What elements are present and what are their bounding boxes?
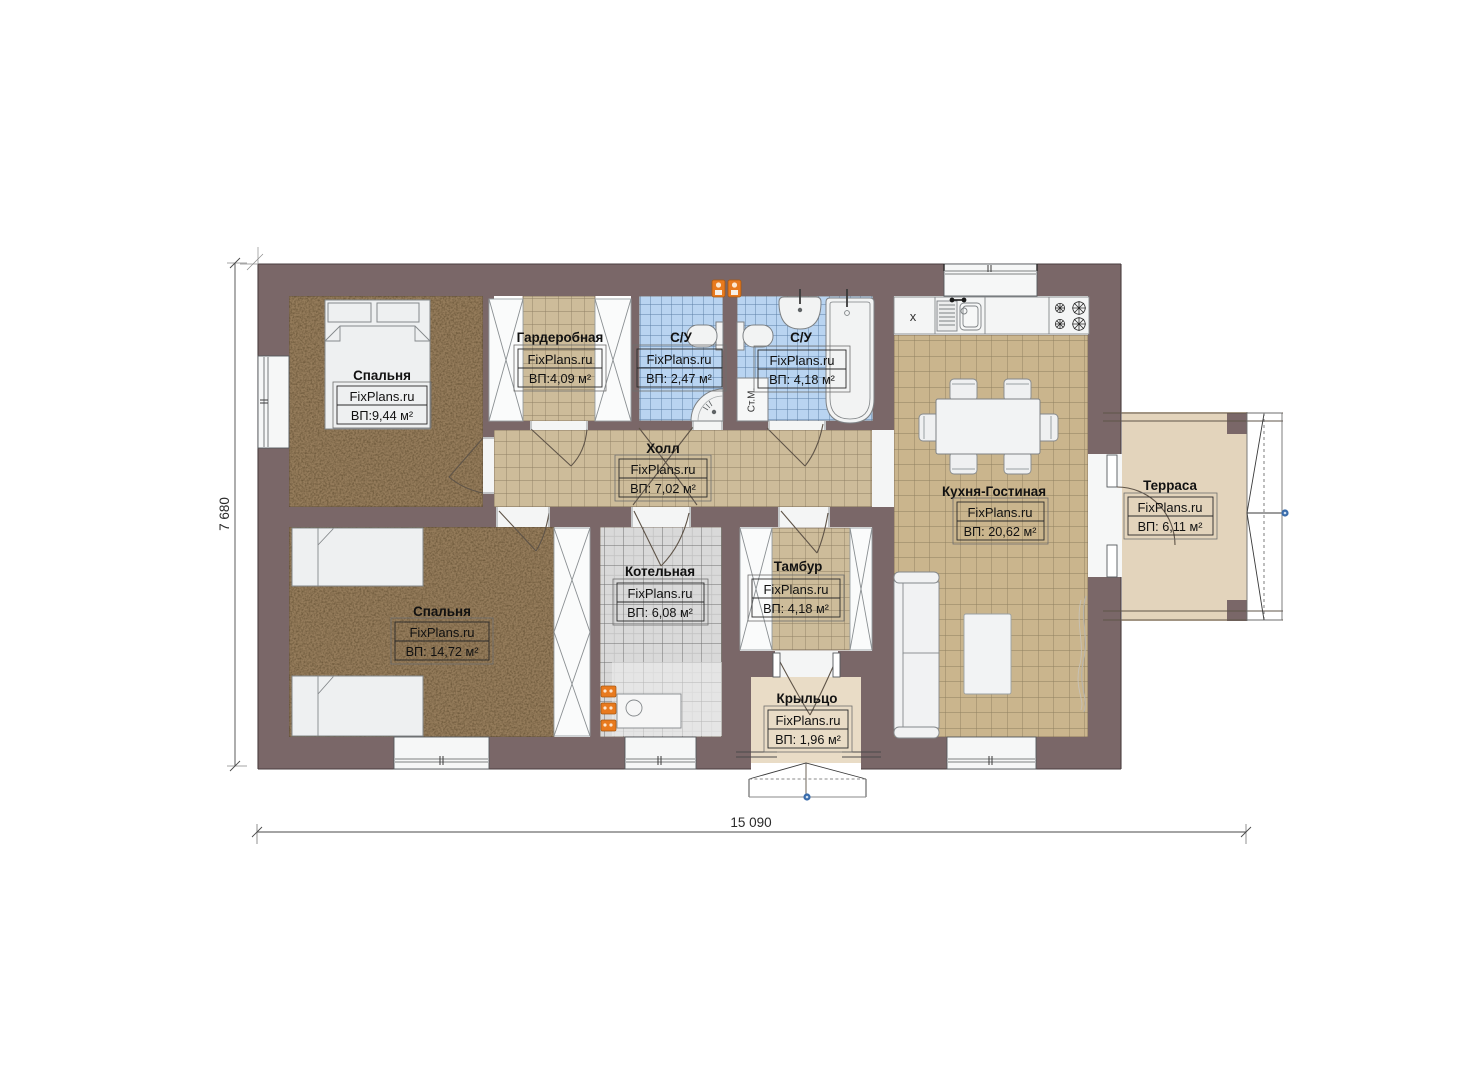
svg-text:ВП: 2,47 м²: ВП: 2,47 м² (646, 372, 712, 386)
svg-text:FixPlans.ru: FixPlans.ru (630, 462, 695, 477)
svg-text:FixPlans.ru: FixPlans.ru (627, 586, 692, 601)
svg-text:ВП: 7,02 м²: ВП: 7,02 м² (630, 482, 696, 496)
svg-text:Спальня: Спальня (413, 604, 471, 619)
svg-text:Кухня-Гостиная: Кухня-Гостиная (942, 484, 1046, 499)
svg-text:ВП: 4,18 м²: ВП: 4,18 м² (769, 373, 835, 387)
svg-text:FixPlans.ru: FixPlans.ru (646, 352, 711, 367)
svg-text:ВП:4,09 м²: ВП:4,09 м² (529, 372, 591, 386)
svg-text:ВП: 20,62 м²: ВП: 20,62 м² (964, 525, 1037, 539)
svg-text:Терраса: Терраса (1143, 478, 1197, 493)
svg-text:7 680: 7 680 (217, 497, 232, 531)
svg-text:ВП: 6,11 м²: ВП: 6,11 м² (1138, 520, 1203, 534)
svg-text:Холл: Холл (646, 441, 680, 456)
svg-text:FixPlans.ru: FixPlans.ru (967, 505, 1032, 520)
svg-text:Крыльцо: Крыльцо (777, 691, 838, 706)
svg-text:Тамбур: Тамбур (774, 559, 823, 574)
svg-text:Спальня: Спальня (353, 368, 411, 383)
svg-text:ВП: 14,72 м²: ВП: 14,72 м² (406, 645, 479, 659)
svg-text:FixPlans.ru: FixPlans.ru (527, 352, 592, 367)
svg-text:ВП: 4,18 м²: ВП: 4,18 м² (763, 602, 829, 616)
svg-text:х: х (910, 309, 917, 324)
svg-text:FixPlans.ru: FixPlans.ru (775, 713, 840, 728)
svg-text:Гардеробная: Гардеробная (517, 330, 604, 345)
svg-text:ВП:9,44 м²: ВП:9,44 м² (351, 409, 413, 423)
svg-text:FixPlans.ru: FixPlans.ru (349, 389, 414, 404)
svg-text:Котельная: Котельная (625, 564, 695, 579)
svg-text:FixPlans.ru: FixPlans.ru (409, 625, 474, 640)
svg-text:FixPlans.ru: FixPlans.ru (763, 582, 828, 597)
svg-text:15 090: 15 090 (730, 815, 771, 830)
svg-text:С/У: С/У (670, 330, 692, 345)
svg-text:FixPlans.ru: FixPlans.ru (769, 353, 834, 368)
svg-text:С/У: С/У (790, 330, 812, 345)
svg-text:ВП: 6,08 м²: ВП: 6,08 м² (627, 606, 693, 620)
svg-text:Ст.М.: Ст.М. (747, 388, 758, 413)
svg-text:ВП: 1,96 м²: ВП: 1,96 м² (775, 733, 841, 747)
svg-text:FixPlans.ru: FixPlans.ru (1137, 500, 1202, 515)
